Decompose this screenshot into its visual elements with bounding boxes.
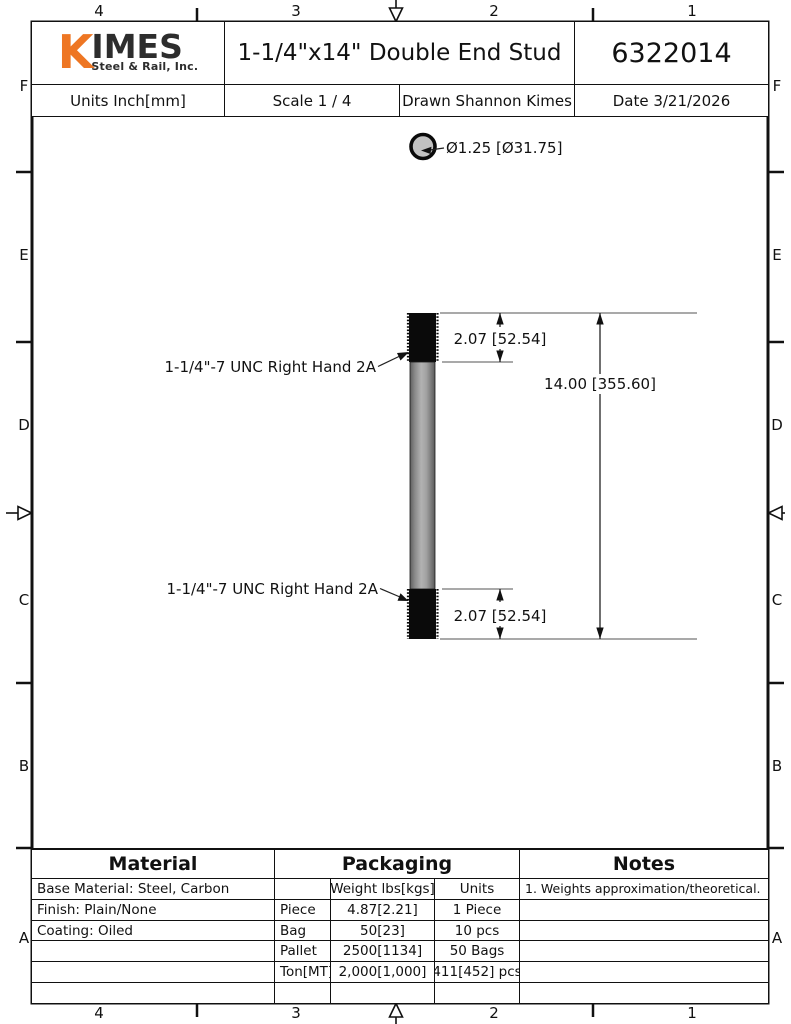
date-cell: Date 3/21/2026 <box>575 85 768 117</box>
weight-col-header: Weight lbs[kgs] <box>331 879 435 899</box>
table-cell: Piece <box>275 900 331 920</box>
table-row <box>32 941 274 962</box>
diameter-callout: Ø1.25 [Ø31.75] <box>446 139 562 157</box>
table-row <box>520 983 768 1003</box>
top-thread-callout: 1-1/4"-7 UNC Right Hand 2A <box>164 358 376 376</box>
table-cell: Pallet <box>275 941 331 961</box>
part-number: 6322014 <box>611 38 731 69</box>
table-cell: 10 pcs <box>435 921 519 941</box>
scale-cell: Scale 1 / 4 <box>225 85 400 117</box>
table-row: Piece 4.87[2.21] 1 Piece <box>275 900 519 921</box>
table-row: Coating: Oiled <box>32 921 274 942</box>
table-cell: 2,000[1,000] <box>331 962 435 982</box>
top-thread-leader <box>378 352 409 367</box>
table-row <box>520 921 768 942</box>
units-cell: Units Inch[mm] <box>32 85 225 117</box>
table-cell: 2500[1134] <box>331 941 435 961</box>
logo-k: K <box>58 33 92 72</box>
table-cell: Ton[MT] <box>275 962 331 982</box>
drawn-by-cell: Drawn Shannon Kimes <box>400 85 575 117</box>
dimension-overall-length <box>596 313 603 639</box>
overall-length-dim-text: 14.00 [355.60] <box>544 375 656 393</box>
units-col-header: Units <box>435 879 519 899</box>
table-cell <box>275 983 331 1003</box>
table-cell <box>275 879 331 899</box>
table-row: Pallet 2500[1134] 50 Bags <box>275 941 519 962</box>
material-header: Material <box>32 850 274 879</box>
part-number-cell: 6322014 <box>575 22 768 85</box>
scale-label: Scale 1 / 4 <box>273 92 352 110</box>
table-cell: 50 Bags <box>435 941 519 961</box>
table-cell: 4.87[2.21] <box>331 900 435 920</box>
units-label: Units Inch[mm] <box>70 92 186 110</box>
logo-subtitle: Steel & Rail, Inc. <box>91 61 198 72</box>
table-row: Finish: Plain/None <box>32 900 274 921</box>
bottom-thread-leader <box>380 589 409 602</box>
table-cell <box>435 983 519 1003</box>
packaging-header: Packaging <box>275 850 519 879</box>
material-coating: Coating: Oiled <box>32 921 133 941</box>
bottom-thread-dim-text: 2.07 [52.54] <box>454 607 547 625</box>
stud-shank <box>410 362 435 589</box>
table-row: Bag 50[23] 10 pcs <box>275 921 519 942</box>
table-cell: 411[452] pcs <box>435 962 519 982</box>
table-row <box>275 983 519 1003</box>
table-cell: 50[23] <box>331 921 435 941</box>
notes-header: Notes <box>520 850 768 879</box>
drawn-by-label: Drawn Shannon Kimes <box>402 92 572 110</box>
table-row: Weight lbs[kgs] Units <box>275 879 519 900</box>
stud-side-view <box>408 313 438 639</box>
drawing-sheet: 4 3 2 1 4 3 2 1 F E D C B A F E D C B A <box>0 0 791 1024</box>
table-row: Ton[MT] 2,000[1,000] 411[452] pcs <box>275 962 519 983</box>
table-cell: 1 Piece <box>435 900 519 920</box>
extension-lines <box>440 313 697 639</box>
notes-table: Notes 1. Weights approximation/theoretic… <box>520 850 768 1003</box>
bottom-thread-callout: 1-1/4"-7 UNC Right Hand 2A <box>166 580 378 598</box>
center-mark-top <box>390 0 403 22</box>
table-row <box>32 983 274 1003</box>
stud-end-view <box>411 135 444 159</box>
material-table: Material Base Material: Steel, Carbon Fi… <box>32 850 275 1003</box>
top-thread-dim-text: 2.07 [52.54] <box>454 330 547 348</box>
table-row <box>32 962 274 983</box>
drawing-title-cell: 1-1/4"x14" Double End Stud <box>225 22 575 85</box>
kimes-logo: K IMES Steel & Rail, Inc. <box>58 33 198 72</box>
table-row <box>520 941 768 962</box>
table-row <box>520 900 768 921</box>
center-mark-bottom <box>390 1004 403 1024</box>
logo-cell: K IMES Steel & Rail, Inc. <box>32 22 225 85</box>
table-cell: Bag <box>275 921 331 941</box>
logo-imes: IMES <box>91 34 182 60</box>
table-row <box>520 962 768 983</box>
center-mark-left <box>6 507 32 520</box>
table-cell <box>331 983 435 1003</box>
table-row: Base Material: Steel, Carbon <box>32 879 274 900</box>
material-finish: Finish: Plain/None <box>32 900 157 920</box>
drawing-title: 1-1/4"x14" Double End Stud <box>238 40 562 66</box>
title-block-tables: Material Base Material: Steel, Carbon Fi… <box>32 848 768 1003</box>
note-item: 1. Weights approximation/theoretical. <box>520 879 761 899</box>
material-base: Base Material: Steel, Carbon <box>32 879 229 899</box>
packaging-table: Packaging Weight lbs[kgs] Units Piece 4.… <box>275 850 520 1003</box>
table-row: 1. Weights approximation/theoretical. <box>520 879 768 900</box>
date-label: Date 3/21/2026 <box>613 92 731 110</box>
center-mark-right <box>769 507 786 520</box>
